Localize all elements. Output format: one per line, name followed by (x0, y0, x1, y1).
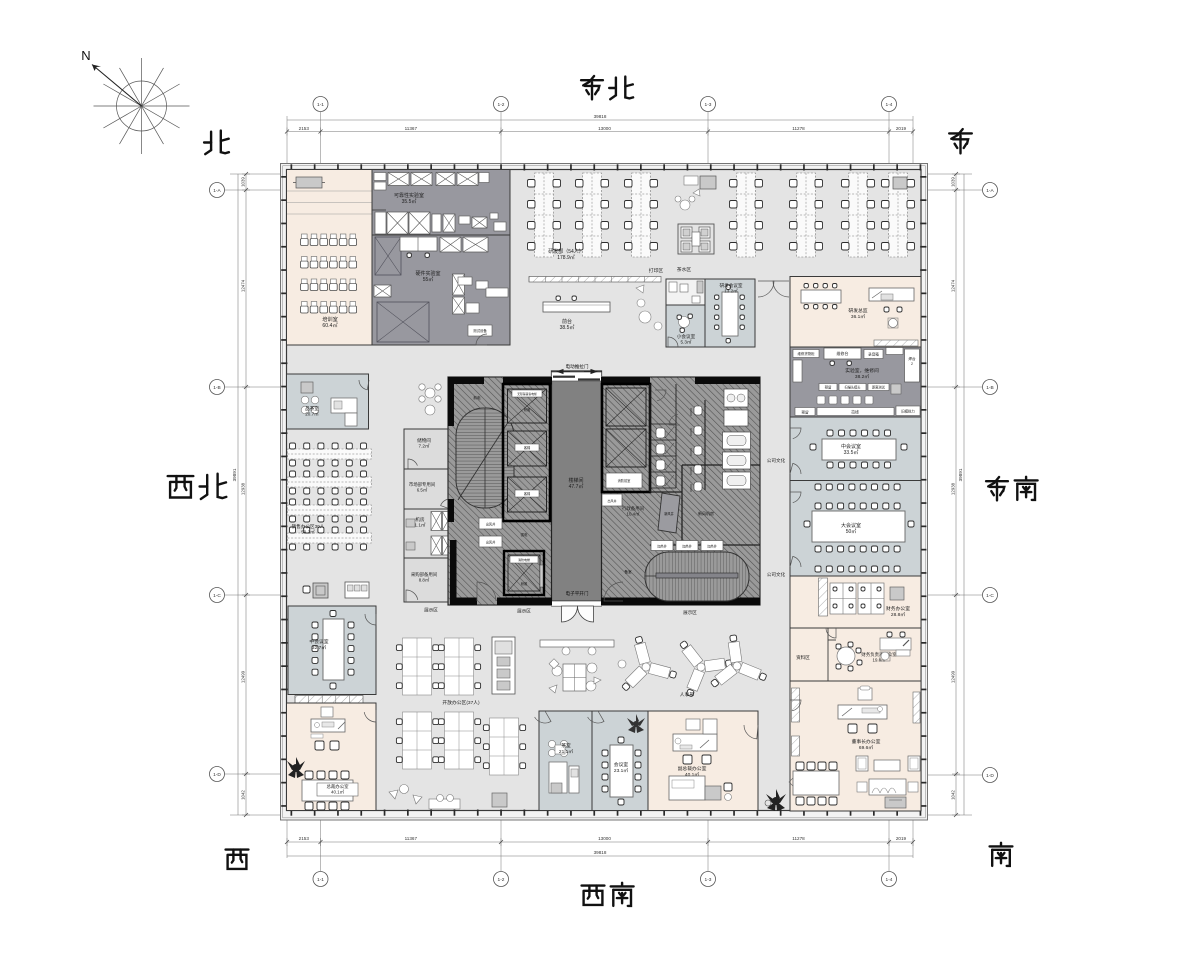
svg-text:消防前室: 消防前室 (618, 478, 631, 483)
svg-text:副总裁办公室: 副总裁办公室 (678, 765, 707, 772)
svg-text:59.2㎡: 59.2㎡ (301, 529, 315, 535)
svg-text:13000: 13000 (598, 126, 611, 131)
svg-text:出风井: 出风井 (486, 522, 496, 527)
svg-text:1-4: 1-4 (886, 877, 893, 883)
svg-text:40.1㎡: 40.1㎡ (331, 788, 345, 794)
svg-text:2019: 2019 (896, 126, 907, 131)
svg-text:1-A: 1-A (986, 188, 994, 194)
svg-text:178.9㎡: 178.9㎡ (557, 254, 575, 261)
svg-text:距离测试: 距离测试 (872, 385, 886, 390)
svg-text:12499: 12499 (240, 670, 245, 683)
svg-text:1042: 1042 (240, 790, 245, 800)
svg-text:5.3㎡: 5.3㎡ (681, 339, 692, 345)
svg-text:电子平开门: 电子平开门 (566, 590, 589, 597)
svg-text:28.8㎡: 28.8㎡ (891, 611, 905, 618)
svg-text:2153: 2153 (299, 126, 310, 131)
svg-text:11278: 11278 (792, 836, 805, 841)
svg-text:1039: 1039 (240, 177, 245, 187)
svg-text:茶室: 茶室 (561, 742, 571, 749)
svg-text:1039: 1039 (950, 177, 955, 187)
svg-text:维修台: 维修台 (837, 350, 849, 356)
svg-text:消防电梯: 消防电梯 (518, 557, 530, 562)
svg-text:预留: 预留 (801, 410, 809, 415)
svg-text:前台: 前台 (562, 318, 572, 325)
svg-text:21.1㎡: 21.1㎡ (559, 748, 573, 755)
svg-text:楼梯间: 楼梯间 (568, 477, 583, 484)
svg-text:出风井: 出风井 (607, 498, 616, 503)
svg-text:6.5㎡: 6.5㎡ (417, 486, 428, 492)
svg-text:47.7㎡: 47.7㎡ (569, 483, 584, 490)
svg-text:1042: 1042 (950, 790, 955, 800)
svg-text:备室: 备室 (624, 569, 632, 574)
svg-text:1-4: 1-4 (886, 102, 893, 108)
svg-text:1-3: 1-3 (705, 102, 712, 108)
svg-text:39818: 39818 (594, 114, 607, 119)
svg-text:2153: 2153 (299, 836, 310, 841)
svg-text:资料区: 资料区 (796, 654, 810, 661)
svg-text:扫描头模头: 扫描头模头 (845, 385, 862, 390)
svg-text:新风井: 新风井 (664, 511, 674, 516)
svg-text:无障碍兼客电梯: 无障碍兼客电梯 (517, 392, 537, 396)
svg-text:13000: 13000 (598, 836, 611, 841)
svg-text:11278: 11278 (792, 126, 805, 131)
svg-text:8.8㎡: 8.8㎡ (419, 576, 430, 582)
svg-text:加热井: 加热井 (682, 544, 692, 549)
svg-text:60.4㎡: 60.4㎡ (322, 321, 338, 329)
svg-text:研发部（54人）: 研发部（54人） (548, 248, 584, 255)
svg-text:12499: 12499 (950, 670, 955, 683)
svg-text:维修货物柜: 维修货物柜 (798, 351, 816, 356)
svg-text:1-B: 1-B (986, 385, 993, 391)
svg-text:轿厢: 轿厢 (521, 581, 527, 586)
svg-text:12474: 12474 (240, 279, 245, 292)
svg-text:1-C: 1-C (213, 593, 221, 599)
svg-text:公司文化: 公司文化 (767, 571, 786, 578)
svg-text:69.6㎡: 69.6㎡ (859, 744, 873, 751)
svg-text:茶水区: 茶水区 (677, 266, 692, 273)
svg-text:23.1㎡: 23.1㎡ (614, 767, 628, 774)
svg-text:12938: 12938 (950, 482, 955, 495)
svg-text:研发总监: 研发总监 (848, 307, 867, 314)
svg-text:拉线: 拉线 (851, 410, 859, 415)
svg-text:大会议室: 大会议室 (841, 522, 861, 529)
svg-text:可靠性实验室: 可靠性实验室 (394, 192, 424, 199)
svg-text:硬件实验室: 硬件实验室 (415, 270, 440, 277)
svg-text:加热井: 加热井 (657, 544, 667, 549)
svg-text:11367: 11367 (405, 126, 418, 131)
svg-text:会议室: 会议室 (614, 761, 629, 768)
svg-text:39891: 39891 (232, 468, 237, 481)
svg-text:董事长办公室: 董事长办公室 (852, 738, 881, 745)
svg-text:1-A: 1-A (213, 188, 221, 194)
svg-text:10.4㎡: 10.4㎡ (627, 510, 641, 516)
svg-text:12474: 12474 (950, 279, 955, 292)
svg-text:电动推拉门: 电动推拉门 (566, 363, 589, 370)
svg-text:36.1㎡: 36.1㎡ (851, 313, 865, 320)
svg-text:焊台: 焊台 (908, 356, 916, 361)
svg-text:前电: 前电 (473, 395, 481, 400)
svg-text:1.1㎡: 1.1㎡ (415, 522, 426, 528)
svg-text:客梯: 客梯 (524, 491, 531, 496)
svg-text:中会议室: 中会议室 (841, 443, 861, 450)
svg-text:1-B: 1-B (213, 385, 220, 391)
svg-text:录音箱: 录音箱 (868, 352, 879, 357)
svg-text:1-D: 1-D (986, 773, 994, 779)
svg-text:1-2: 1-2 (498, 102, 505, 108)
svg-text:培训室: 培训室 (322, 315, 338, 323)
svg-text:强电: 强电 (521, 532, 528, 537)
svg-text:1-1: 1-1 (317, 877, 324, 883)
svg-text:预留: 预留 (825, 385, 832, 390)
svg-text:客梯: 客梯 (524, 445, 531, 450)
svg-text:1-2: 1-2 (498, 877, 505, 883)
svg-text:出风井: 出风井 (486, 540, 496, 545)
svg-text:35.5㎡: 35.5㎡ (402, 198, 417, 205)
svg-text:20.7㎡: 20.7㎡ (305, 411, 319, 417)
svg-text:中会议室: 中会议室 (309, 638, 328, 645)
svg-text:2: 2 (911, 362, 913, 366)
svg-text:1-1: 1-1 (317, 102, 324, 108)
svg-text:32.7㎡: 32.7㎡ (312, 644, 326, 651)
svg-text:人事部: 人事部 (680, 691, 695, 698)
svg-text:1-3: 1-3 (705, 877, 712, 883)
svg-text:公司文化: 公司文化 (767, 457, 786, 464)
svg-text:1-D: 1-D (213, 772, 221, 778)
svg-text:轿厢: 轿厢 (524, 407, 530, 412)
svg-text:财务办公室: 财务办公室 (886, 605, 910, 612)
svg-text:33.5㎡: 33.5㎡ (844, 449, 859, 456)
svg-text:2019: 2019 (896, 836, 907, 841)
svg-text:开放办公区(37人): 开放办公区(37人) (442, 699, 480, 706)
svg-text:实验室，维修间: 实验室，维修间 (845, 367, 879, 374)
svg-text:39818: 39818 (594, 850, 607, 855)
svg-text:38.5㎡: 38.5㎡ (560, 324, 575, 331)
svg-text:旧模拟力: 旧模拟力 (901, 409, 915, 414)
svg-text:55㎡: 55㎡ (423, 276, 434, 283)
svg-text:39891: 39891 (958, 468, 963, 481)
svg-text:1-C: 1-C (986, 593, 994, 599)
svg-text:50㎡: 50㎡ (846, 528, 857, 535)
svg-text:13.2㎡: 13.2㎡ (724, 288, 738, 294)
svg-text:测试设备: 测试设备 (473, 328, 487, 333)
svg-text:N: N (81, 48, 90, 63)
svg-text:38.2㎡: 38.2㎡ (855, 373, 869, 380)
svg-text:7.2㎡: 7.2㎡ (419, 443, 430, 449)
svg-text:打印区: 打印区 (649, 267, 664, 274)
svg-text:加热井: 加热井 (707, 544, 717, 549)
svg-text:12938: 12938 (240, 482, 245, 495)
svg-text:11367: 11367 (405, 836, 418, 841)
svg-text:新风机房: 新风机房 (698, 510, 714, 516)
